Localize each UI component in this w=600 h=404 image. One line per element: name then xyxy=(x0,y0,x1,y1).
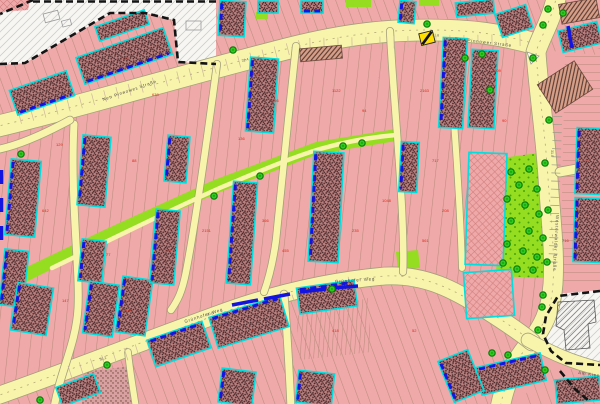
tree-center xyxy=(516,268,517,269)
tree-center xyxy=(536,188,537,189)
tree-center xyxy=(259,175,260,176)
tree-center xyxy=(213,195,214,196)
tree-center xyxy=(510,220,511,221)
tree-center xyxy=(546,261,547,262)
tree-icon xyxy=(544,259,550,265)
parcel-number: 642 xyxy=(42,208,49,213)
map-canvas[interactable]: 2157638214356112294216371710482353662151… xyxy=(0,0,600,404)
map-viewport: 2157638214356112294216371710482353662151… xyxy=(0,0,600,404)
parcel-number: 716 xyxy=(562,238,569,243)
tree-center xyxy=(20,153,21,154)
tree-center xyxy=(361,142,362,143)
tree-icon xyxy=(520,248,526,254)
tree-center xyxy=(532,57,533,58)
tree-icon xyxy=(560,10,566,16)
tree-icon xyxy=(462,55,468,61)
crosshatch-block-outline xyxy=(463,269,514,318)
tree-icon xyxy=(546,117,552,123)
tree-icon xyxy=(340,143,346,149)
parcel-number: 561 xyxy=(422,238,429,243)
building-outline xyxy=(258,1,278,13)
building xyxy=(573,198,600,263)
tree-icon xyxy=(540,292,546,298)
tree-center xyxy=(562,12,563,13)
parcel-number: 52 xyxy=(412,328,417,333)
tree-icon xyxy=(530,55,536,61)
parcel-number: 455 xyxy=(282,248,289,253)
building xyxy=(308,151,344,262)
building xyxy=(258,1,278,13)
tree-icon xyxy=(514,266,520,272)
tree-center xyxy=(331,288,332,289)
tree-center xyxy=(106,364,107,365)
parcel-number: 208 xyxy=(442,208,449,213)
tree-icon xyxy=(534,254,540,260)
parcel-number: 366 xyxy=(262,218,269,223)
green-top-2 xyxy=(419,0,439,6)
building xyxy=(218,368,256,404)
parcel-number: 147 xyxy=(62,298,69,303)
tree-center xyxy=(522,250,523,251)
tree-center xyxy=(547,209,548,210)
tree-icon xyxy=(489,350,495,356)
tree-center xyxy=(507,354,508,355)
parcel-number: 2209 xyxy=(492,68,502,73)
tree-icon xyxy=(516,182,522,188)
parcel-number: 334 xyxy=(582,158,589,163)
tree-center xyxy=(544,369,545,370)
tree-icon xyxy=(526,166,532,172)
tree-icon xyxy=(542,367,548,373)
parcel-number: 638 xyxy=(152,92,159,97)
parcel-number: 1310 xyxy=(162,248,172,253)
building xyxy=(5,159,42,237)
tree-icon xyxy=(18,151,24,157)
street-blue-dash xyxy=(332,286,358,288)
tree-icon xyxy=(500,260,506,266)
crosshatch-block xyxy=(465,152,507,265)
parcel-number: 214 xyxy=(252,72,259,77)
building xyxy=(78,239,106,283)
parcel-number: 129 xyxy=(56,142,63,147)
tree-center xyxy=(542,237,543,238)
building xyxy=(77,135,111,207)
tree-icon xyxy=(522,202,528,208)
crosshatch-block xyxy=(463,269,514,318)
tree-center xyxy=(510,171,511,172)
tree-icon xyxy=(536,211,542,217)
tree-icon xyxy=(104,362,110,368)
parcel-number: 90 xyxy=(502,118,507,123)
tree-icon xyxy=(487,87,493,93)
parcel-number: 2209 xyxy=(122,308,132,313)
tree-center xyxy=(548,119,549,120)
tree-icon xyxy=(508,169,514,175)
tree-center xyxy=(464,57,465,58)
crosshatch-block-outline xyxy=(465,152,507,265)
tree-center xyxy=(232,49,233,50)
tree-icon xyxy=(540,22,546,28)
tree-center xyxy=(542,24,543,25)
tree-center xyxy=(502,262,503,263)
parcel-number: 94 xyxy=(362,108,367,113)
tree-icon xyxy=(329,286,335,292)
tree-icon xyxy=(534,186,540,192)
building xyxy=(83,281,120,337)
tree-center xyxy=(506,243,507,244)
parcel-number: 136 xyxy=(238,136,245,141)
tree-center xyxy=(39,399,40,400)
tree-center xyxy=(342,145,343,146)
tree-center xyxy=(426,23,427,24)
elevation-number: 31.0 xyxy=(550,150,554,157)
parcel-number: 717 xyxy=(432,158,439,163)
tree-icon xyxy=(545,207,551,213)
tree-center xyxy=(524,204,525,205)
elevation-number: 31.8 xyxy=(432,33,439,37)
tree-icon xyxy=(542,160,548,166)
parcel-number: 1048 xyxy=(382,198,392,203)
tree-center xyxy=(536,256,537,257)
tree-icon xyxy=(508,218,514,224)
tree-icon xyxy=(539,304,545,310)
tree-center xyxy=(538,213,539,214)
tree-icon xyxy=(211,193,217,199)
tree-center xyxy=(532,269,533,270)
parcel-number: 63 xyxy=(252,328,257,333)
building xyxy=(245,57,278,133)
tree-center xyxy=(537,329,538,330)
tree-center xyxy=(506,198,507,199)
parcel-number: 77 xyxy=(106,252,111,257)
green-top-1 xyxy=(346,0,371,7)
tree-icon xyxy=(359,140,365,146)
building xyxy=(439,37,468,128)
tree-icon xyxy=(540,235,546,241)
tree-center xyxy=(491,352,492,353)
tree-center xyxy=(528,230,529,231)
building xyxy=(218,0,246,36)
tree-icon xyxy=(530,267,536,273)
building xyxy=(398,0,416,23)
tree-center xyxy=(528,168,529,169)
tree-center xyxy=(489,89,490,90)
tree-center xyxy=(544,162,545,163)
tree-center xyxy=(518,184,519,185)
parcel-number: 2151 xyxy=(202,228,212,233)
tree-icon xyxy=(504,196,510,202)
tree-icon xyxy=(424,21,430,27)
tree-icon xyxy=(230,47,236,53)
tree-center xyxy=(481,53,482,54)
tree-icon xyxy=(545,6,551,12)
building-outline xyxy=(573,198,600,263)
parcel-number: 2157 xyxy=(120,56,130,61)
building xyxy=(295,370,334,404)
parcel-number: 2163 xyxy=(420,88,430,93)
building xyxy=(164,135,190,183)
parcel-number: 88 xyxy=(132,158,137,163)
parcel-number: 418 xyxy=(332,328,339,333)
tree-center xyxy=(542,294,543,295)
parcel-number: 235 xyxy=(352,228,359,233)
building-entrance-dashes xyxy=(220,3,222,32)
tree-icon xyxy=(505,352,511,358)
tree-center xyxy=(547,8,548,9)
tree-icon xyxy=(504,241,510,247)
building xyxy=(399,142,420,193)
tree-center xyxy=(541,306,542,307)
parcel-number: 1122 xyxy=(332,88,341,93)
building xyxy=(301,1,323,13)
tree-icon xyxy=(535,327,541,333)
tree-icon xyxy=(37,397,43,403)
tree-icon xyxy=(526,228,532,234)
building xyxy=(10,282,53,335)
parcel-number: 356 xyxy=(272,98,279,103)
tree-icon xyxy=(257,173,263,179)
tree-icon xyxy=(479,51,485,57)
